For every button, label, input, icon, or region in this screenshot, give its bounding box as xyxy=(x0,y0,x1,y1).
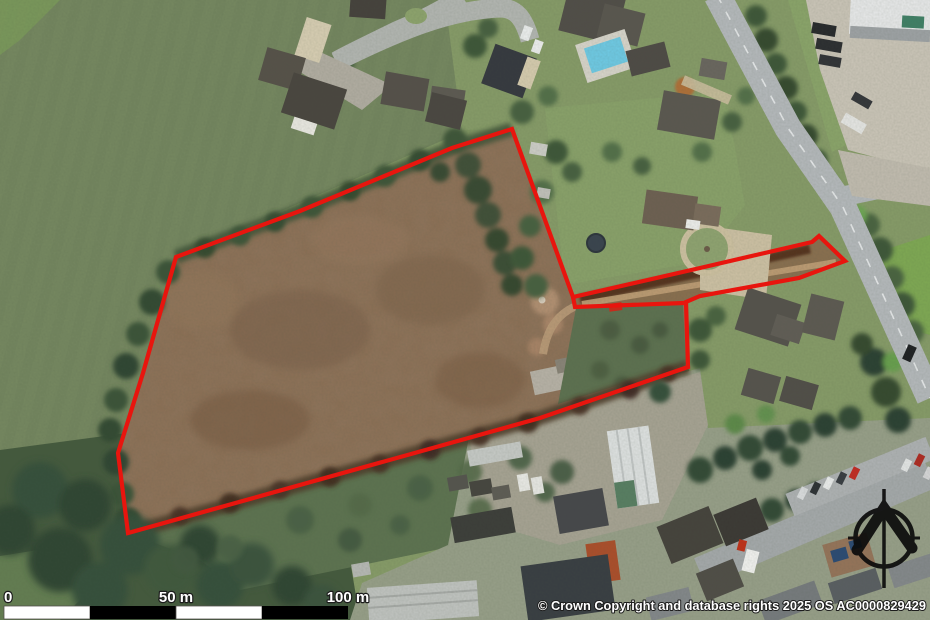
scale-label-0: 0 xyxy=(4,589,12,606)
scale-segment-4 xyxy=(262,606,348,619)
scale-segment-3 xyxy=(176,606,262,619)
aerial-map: 0 50 m 100 m © Crown Copyright and datab… xyxy=(0,0,930,620)
scale-segment-2 xyxy=(90,606,176,619)
photo-grain xyxy=(0,0,930,620)
scale-label-50m: 50 m xyxy=(159,589,193,606)
copyright-attribution: © Crown Copyright and database rights 20… xyxy=(538,598,926,613)
aerial-map-screenshot: 0 50 m 100 m © Crown Copyright and datab… xyxy=(0,0,930,620)
scale-label-100m: 100 m xyxy=(327,589,370,606)
scale-segment-1 xyxy=(4,606,90,619)
